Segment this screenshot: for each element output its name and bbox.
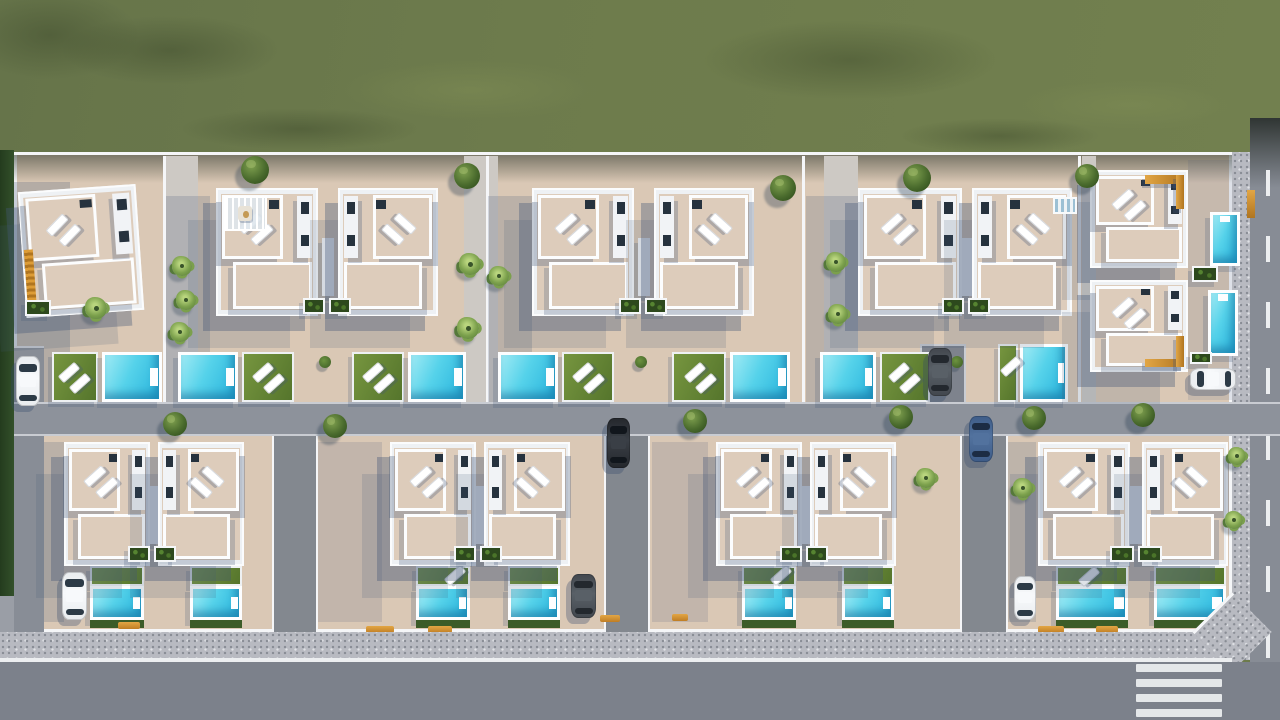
palm-tree <box>1013 478 1033 498</box>
pool-step <box>454 368 462 386</box>
roof-lounger-set <box>878 217 918 257</box>
lawn <box>508 566 560 586</box>
palm-core <box>184 298 188 302</box>
mid-road <box>14 402 1280 436</box>
planter-box <box>303 298 325 314</box>
stairwell-strip <box>489 450 501 510</box>
pergola-orange <box>1176 336 1184 368</box>
left-hedge <box>0 150 14 596</box>
villa-layout <box>656 190 752 314</box>
stairwell-window <box>135 487 142 498</box>
main-road <box>0 662 1280 720</box>
stairwell-window <box>944 202 952 213</box>
sun-lounger <box>583 373 605 394</box>
tree-round <box>683 409 707 433</box>
palm-tree <box>170 322 190 342</box>
roof-lounger-set <box>194 470 227 508</box>
palm-core <box>924 476 928 480</box>
hedge-row <box>742 620 796 628</box>
table-plate <box>243 211 248 218</box>
exterior-stair-blue <box>1053 197 1077 214</box>
pool <box>1208 290 1238 356</box>
tree-round <box>454 163 480 189</box>
sun-lounger <box>1070 477 1094 500</box>
pool-step <box>231 597 238 608</box>
palm-core <box>94 306 99 311</box>
villa-r2 <box>1090 280 1188 372</box>
tree-round <box>903 164 931 192</box>
stairwell-window <box>1150 456 1157 467</box>
skylight <box>80 199 92 208</box>
lane-dash <box>1266 170 1270 196</box>
car-rear-window <box>1225 371 1231 387</box>
car-rear-window <box>972 451 989 457</box>
stairwell-window <box>166 487 173 498</box>
roof-lounger-set <box>552 217 591 257</box>
zebra-stripe <box>1136 709 1222 717</box>
stairwell-strip <box>297 196 312 258</box>
pool <box>90 586 144 620</box>
car-gray-parking-pad <box>928 348 952 396</box>
skylight <box>1175 454 1183 462</box>
roof-lounger-set <box>733 470 766 508</box>
roof-lower <box>660 262 738 309</box>
roof-lower <box>1106 227 1182 263</box>
stairwell-window <box>617 202 625 213</box>
orange-gate <box>1247 190 1255 218</box>
lounger-set <box>1000 360 1036 390</box>
tree-highlight <box>1079 167 1087 174</box>
planter-box <box>1110 546 1134 562</box>
car-windshield <box>610 426 627 434</box>
villa-layout <box>20 186 142 316</box>
alley-road <box>272 436 318 632</box>
skylight <box>109 454 117 462</box>
lounger-set <box>684 366 720 396</box>
lounger-set <box>444 569 480 599</box>
shadow-overlay <box>44 442 64 622</box>
tree-highlight <box>687 412 695 419</box>
stairwell-window <box>981 235 989 246</box>
car-rear-window <box>1017 610 1033 616</box>
lounger-set <box>362 366 398 396</box>
flowerbed <box>672 614 688 621</box>
roof-lounger-set <box>407 470 440 508</box>
palm-core <box>497 274 501 278</box>
palm-core <box>836 312 840 316</box>
car-blue-right-alley <box>969 416 993 462</box>
alley-road <box>960 436 1008 632</box>
sun-lounger <box>69 373 91 394</box>
planter-box <box>128 546 150 562</box>
pool-step <box>883 597 890 608</box>
car-white-right-block <box>1190 368 1236 390</box>
skylight <box>517 454 525 462</box>
car-windshield <box>972 423 990 430</box>
sun-lounger <box>899 373 921 394</box>
car-windshield <box>1017 583 1034 590</box>
palm-tree <box>1228 447 1246 465</box>
tree-highlight <box>908 168 918 176</box>
palm-core <box>468 262 473 267</box>
tree-highlight <box>775 179 784 187</box>
car-roof <box>973 433 989 445</box>
palm-tree <box>828 304 848 324</box>
sun-lounger <box>263 373 285 394</box>
palm-core <box>834 260 838 264</box>
grass-blotch <box>180 108 420 150</box>
pergola-orange <box>1176 175 1184 209</box>
skylight <box>585 200 595 209</box>
planter-box <box>780 546 802 562</box>
pool <box>730 352 790 402</box>
stairwell-window <box>787 456 794 467</box>
sun-lounger <box>1123 307 1147 330</box>
stairwell-window <box>301 235 309 246</box>
stairwell-window <box>347 202 355 213</box>
villa-c2 <box>654 188 754 316</box>
roof-lounger-set <box>846 470 879 508</box>
car-white-lower-left <box>62 572 87 620</box>
lane-dash <box>1266 500 1270 526</box>
villa-layout <box>534 190 632 314</box>
villa-layout <box>1092 172 1186 266</box>
lane-dash <box>1266 302 1270 328</box>
palm-tree <box>85 297 107 319</box>
stairwell-window <box>119 231 129 243</box>
hedge-row <box>508 620 560 628</box>
planter-box <box>806 546 828 562</box>
pool <box>842 586 894 620</box>
car-black-mid-alley <box>607 418 630 468</box>
planter-box <box>1192 266 1218 282</box>
roof-lounger-set <box>380 217 418 257</box>
skylight <box>912 200 922 209</box>
planter-box <box>619 298 641 314</box>
tree-round <box>1131 403 1155 427</box>
car-windshield <box>65 579 84 587</box>
stairwell-window <box>461 456 468 467</box>
car-roof <box>1018 592 1033 603</box>
stairwell-window <box>818 456 825 467</box>
tree-highlight <box>893 408 901 415</box>
palm-core <box>1235 454 1239 458</box>
lawn <box>842 566 894 586</box>
pool-step <box>865 368 873 386</box>
roof-lounger-set <box>1014 217 1052 257</box>
hedge-row <box>190 620 242 628</box>
planter-box <box>454 546 476 562</box>
stairwell-window <box>663 202 671 213</box>
lane-dash <box>1266 236 1270 262</box>
stairwell-window <box>166 456 173 467</box>
villa-a <box>18 184 145 318</box>
villa-b2 <box>338 188 438 316</box>
lane-dash <box>1266 368 1270 394</box>
roof-lounger-set <box>1178 470 1211 508</box>
shrub <box>635 356 647 368</box>
stairwell-strip <box>458 450 470 510</box>
roof-lounger-set <box>42 216 90 258</box>
pool-step <box>1114 597 1124 608</box>
sun-lounger <box>373 373 395 394</box>
roof-lounger-set <box>81 470 114 508</box>
planter-box <box>968 298 990 314</box>
stairwell-window <box>617 235 625 246</box>
car-roof <box>611 436 627 449</box>
palm-tree <box>916 468 936 488</box>
aerial-development-render <box>0 0 1280 720</box>
planter-box <box>1190 352 1212 364</box>
stairwell-strip <box>1111 450 1124 510</box>
stairwell-window <box>492 456 499 467</box>
pool <box>178 352 238 402</box>
car-white-lower-l4 <box>1014 576 1036 620</box>
skylight <box>191 454 199 462</box>
pool <box>508 586 560 620</box>
tree-highlight <box>1026 409 1034 416</box>
flowerbed <box>118 622 140 629</box>
stairwell-strip <box>1147 450 1159 510</box>
roof-lounger-set <box>520 470 553 508</box>
pool-step <box>546 368 554 386</box>
palm-tree <box>459 253 481 275</box>
lawn <box>190 566 242 586</box>
car-roof <box>575 590 592 601</box>
lounger-set <box>572 366 608 396</box>
skylight <box>693 200 703 209</box>
palm-tree <box>489 266 509 286</box>
stairwell-window <box>981 202 989 213</box>
villa-layout <box>340 190 436 314</box>
shadow-overlay <box>318 442 382 622</box>
villa-layout <box>218 190 316 314</box>
stairwell-window <box>117 199 127 211</box>
car-gray-lower-mid <box>571 574 596 618</box>
lounger-set <box>1078 570 1114 600</box>
grass-blotch <box>700 20 1000 100</box>
shadow-overlay <box>652 442 708 622</box>
tree-round <box>163 412 187 436</box>
sun-lounger <box>566 223 590 246</box>
stairwell-strip <box>941 196 956 258</box>
stairwell-strip <box>163 450 175 510</box>
pool <box>820 352 876 402</box>
stairwell-window <box>301 202 309 213</box>
lounger-set <box>58 366 94 396</box>
roof-lounger-set <box>696 217 734 257</box>
divider-wall <box>1078 156 1081 402</box>
stairwell-window <box>1150 487 1157 498</box>
stairs-landing <box>638 238 650 296</box>
pool <box>102 352 162 402</box>
stairwell-strip <box>1168 286 1182 330</box>
pool-step <box>459 597 466 608</box>
pool <box>1210 212 1240 266</box>
car-roof <box>932 365 948 377</box>
palm-tree <box>172 256 192 276</box>
skylight <box>1011 200 1021 209</box>
planter-box <box>1138 546 1162 562</box>
villa-layout <box>860 190 960 314</box>
stairwell-strip <box>815 450 827 510</box>
pool <box>190 586 242 620</box>
stairwell-window <box>944 235 952 246</box>
tree-round <box>889 405 913 429</box>
tree-highlight <box>327 417 335 424</box>
flowerbed <box>600 615 620 622</box>
stairs-landing <box>1130 486 1142 544</box>
car-windshield <box>1197 371 1204 388</box>
left-corner-paving <box>0 596 14 636</box>
pool-step <box>785 597 792 608</box>
roof-lounger-set <box>1109 193 1147 223</box>
tree-round <box>1075 164 1099 188</box>
zebra-stripe <box>1136 664 1222 672</box>
stairwell-strip <box>613 196 628 258</box>
lounger-set <box>252 366 288 396</box>
stairwell-strip <box>660 196 674 258</box>
grass-blotch <box>340 60 600 120</box>
lane-dash <box>1266 434 1270 460</box>
zebra-stripe <box>1136 679 1222 687</box>
villa-layout <box>1092 282 1186 370</box>
skylight <box>1086 454 1095 462</box>
planter-box <box>942 298 964 314</box>
sun-lounger <box>892 223 916 246</box>
stairwell-strip <box>978 196 992 258</box>
right-road-shadow <box>1250 118 1280 188</box>
pool-step <box>549 597 556 608</box>
stairwell-window <box>1171 291 1179 299</box>
palm-core <box>1021 486 1025 490</box>
planter-box <box>645 298 667 314</box>
lawn <box>90 566 144 586</box>
grass-blotch <box>900 118 1100 154</box>
stairwell-window <box>492 487 499 498</box>
planter-box <box>329 298 351 314</box>
car-rear-window <box>66 609 84 615</box>
shrub <box>319 356 331 368</box>
sun-lounger <box>695 373 717 394</box>
pool-step <box>1220 216 1231 222</box>
palm-tree <box>826 252 846 272</box>
lane-dash <box>1266 566 1270 592</box>
tree-highlight <box>1135 406 1143 413</box>
planter-box <box>480 546 502 562</box>
roof-lower <box>344 262 422 309</box>
pool-step <box>133 597 140 608</box>
car-roof <box>1207 372 1219 387</box>
palm-core <box>180 264 184 268</box>
stairwell-window <box>787 487 794 498</box>
car-rear-window <box>610 457 627 464</box>
bottom-sidewalk <box>0 632 1250 660</box>
palm-core <box>1232 518 1236 522</box>
villa-b1 <box>216 188 318 316</box>
stairwell-window <box>135 456 142 467</box>
car-windshield <box>574 581 593 588</box>
car-windshield <box>931 355 949 363</box>
lawn <box>1154 566 1226 586</box>
villa-d1 <box>858 188 962 316</box>
hedge-row <box>842 620 894 628</box>
car-rear-window <box>19 395 36 402</box>
skylight <box>435 454 443 462</box>
palm-tree <box>176 290 196 310</box>
pool-step <box>150 368 158 386</box>
pool-step <box>778 368 786 386</box>
stairwell-window <box>663 235 671 246</box>
stairwell-window <box>347 235 355 246</box>
villa-r1 <box>1090 170 1188 268</box>
roof-lower <box>233 262 312 309</box>
roof-lower <box>549 262 628 309</box>
skylight <box>1141 289 1150 295</box>
tree-round <box>1022 406 1046 430</box>
stairwell-window <box>461 487 468 498</box>
stairwell-window <box>818 487 825 498</box>
car-rear-window <box>931 385 948 391</box>
tree-highlight <box>167 415 175 422</box>
skylight <box>761 454 769 462</box>
stairwell-strip <box>132 450 144 510</box>
stairwell-window <box>1114 487 1121 498</box>
tree-round <box>323 414 347 438</box>
skylight <box>269 200 279 209</box>
pergola <box>224 196 267 231</box>
stairwell-strip <box>344 196 358 258</box>
pool-step <box>1058 363 1064 384</box>
car-rear-window <box>575 608 593 614</box>
car-roof <box>66 589 83 601</box>
divider-wall <box>802 156 805 402</box>
lounger-set <box>770 569 806 599</box>
planter-box <box>25 300 51 316</box>
shrub <box>951 356 963 368</box>
pool <box>408 352 466 402</box>
pool-step <box>226 368 234 386</box>
palm-tree <box>457 317 479 339</box>
tree-highlight <box>246 160 256 168</box>
palm-core <box>466 326 471 331</box>
tree-round <box>241 156 269 184</box>
palm-tree <box>1225 511 1243 529</box>
stairwell-strip <box>784 450 796 510</box>
palm-core <box>178 330 182 334</box>
roof-lounger-set <box>1056 470 1091 508</box>
lounger-set <box>888 366 924 396</box>
roof-lounger-set <box>1109 301 1147 329</box>
stairwell-window <box>1171 314 1179 322</box>
zebra-stripe <box>1136 694 1222 702</box>
stairwell-window <box>1114 456 1121 467</box>
planter-box <box>154 546 176 562</box>
car-windshield <box>19 364 37 372</box>
villa-c1 <box>532 188 634 316</box>
pool <box>498 352 558 402</box>
tree-highlight <box>459 167 468 175</box>
stairs-landing <box>322 238 334 296</box>
skylight <box>377 200 387 209</box>
skylight <box>843 454 851 462</box>
car-roof <box>20 374 36 387</box>
tree-round <box>770 175 796 201</box>
car-white-left-road <box>16 356 40 406</box>
pool-step <box>1218 294 1229 301</box>
